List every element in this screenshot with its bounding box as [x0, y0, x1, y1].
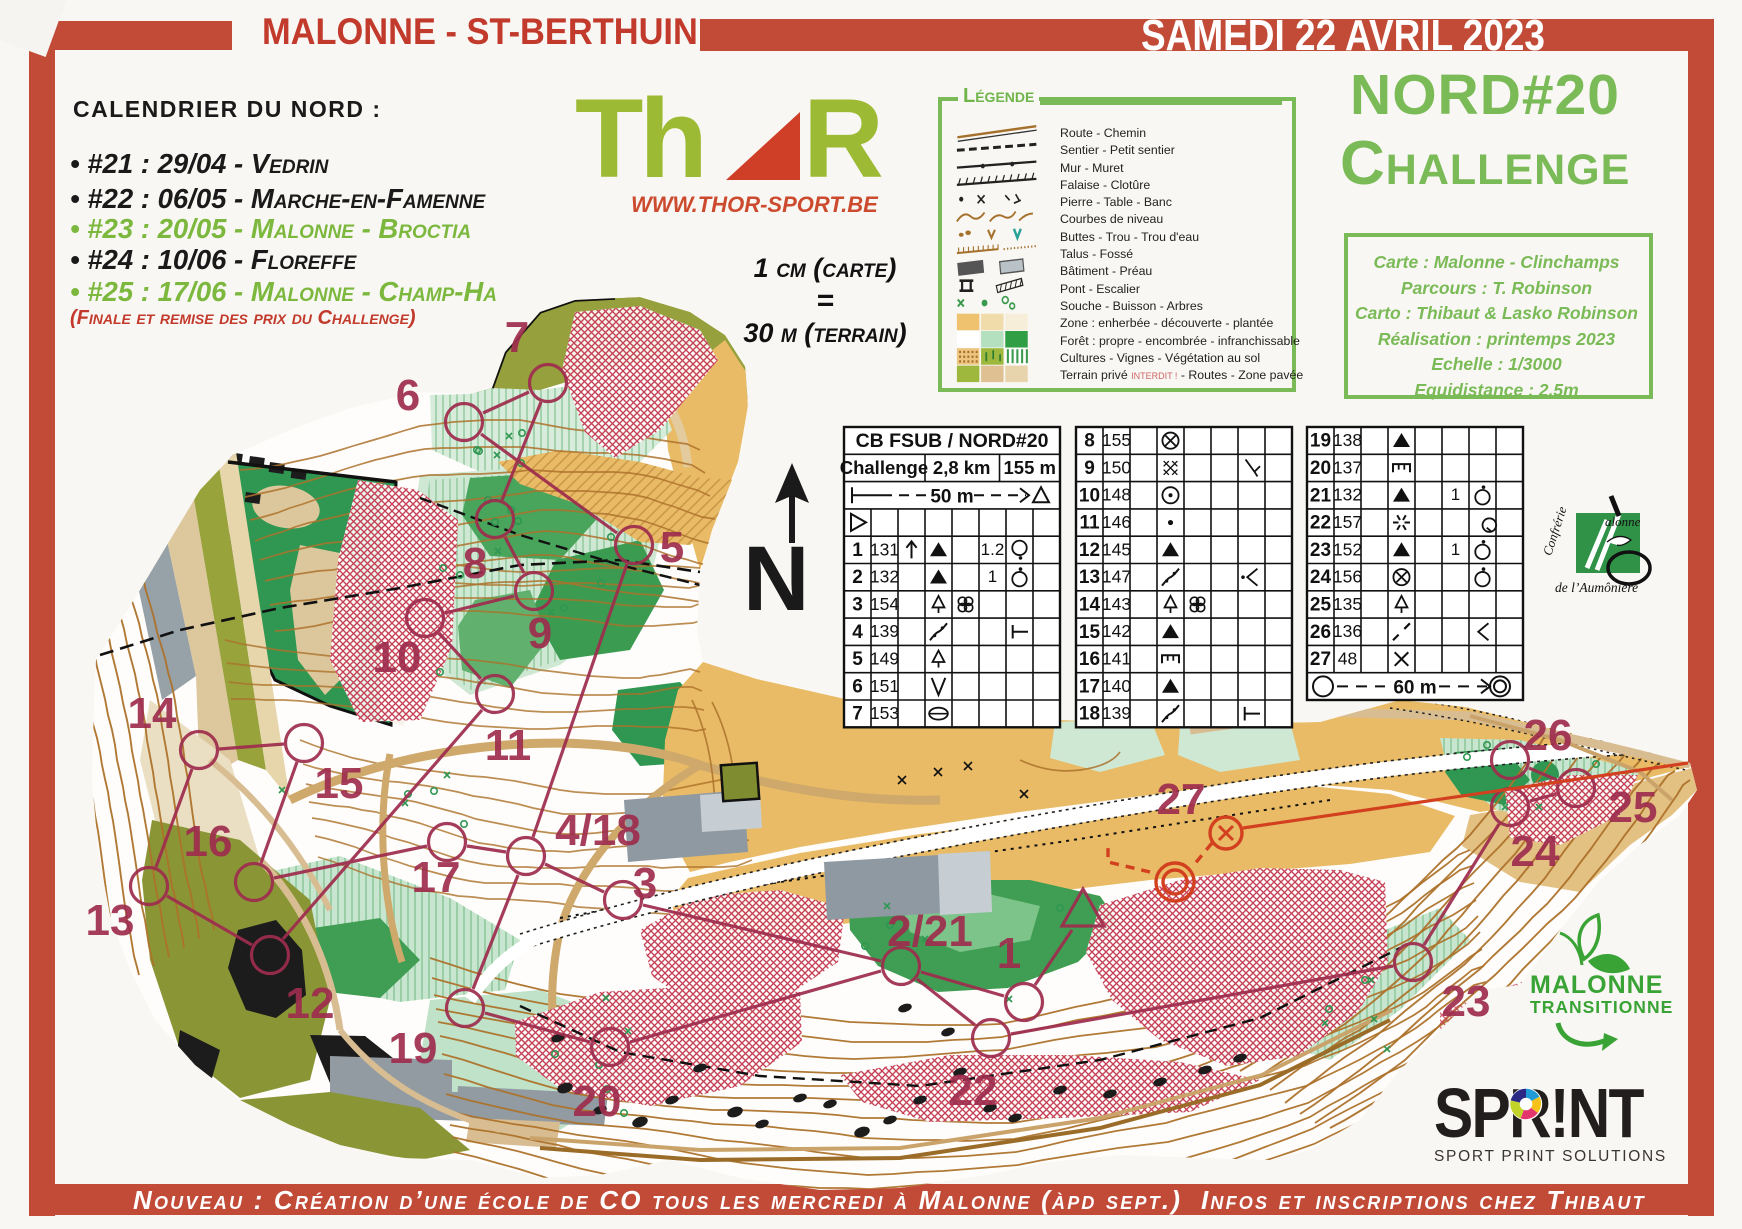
- svg-text:12: 12: [1079, 540, 1100, 561]
- svg-text:27: 27: [1310, 649, 1331, 670]
- svg-text:CB FSUB / NORD#20: CB FSUB / NORD#20: [856, 430, 1049, 452]
- svg-text:140: 140: [1102, 676, 1131, 696]
- svg-text:13: 13: [1079, 567, 1100, 588]
- svg-text:141: 141: [1102, 649, 1131, 669]
- svg-text:132: 132: [1333, 485, 1362, 505]
- svg-text:152: 152: [1333, 539, 1362, 559]
- svg-text:22: 22: [1310, 513, 1331, 534]
- svg-text:1: 1: [852, 540, 863, 561]
- svg-text:26: 26: [1310, 622, 1331, 643]
- svg-text:136: 136: [1333, 621, 1362, 641]
- svg-text:156: 156: [1333, 567, 1362, 587]
- svg-text:139: 139: [1102, 703, 1131, 723]
- svg-text:157: 157: [1333, 512, 1362, 532]
- svg-text:155: 155: [1102, 430, 1131, 450]
- svg-text:139: 139: [870, 621, 899, 641]
- svg-text:149: 149: [870, 649, 899, 669]
- svg-text:60 m: 60 m: [1393, 677, 1436, 698]
- svg-text:145: 145: [1102, 539, 1131, 559]
- svg-text:15: 15: [1079, 622, 1101, 643]
- svg-text:Challenge: Challenge: [840, 457, 928, 478]
- svg-text:147: 147: [1102, 567, 1131, 587]
- svg-text:24: 24: [1310, 567, 1332, 588]
- svg-text:50 m: 50 m: [930, 486, 973, 507]
- svg-text:148: 148: [1102, 485, 1131, 505]
- svg-text:150: 150: [1102, 457, 1131, 477]
- svg-text:132: 132: [870, 567, 899, 587]
- svg-text:1: 1: [988, 567, 997, 586]
- svg-text:154: 154: [870, 594, 899, 614]
- svg-text:143: 143: [1102, 594, 1131, 614]
- svg-text:6: 6: [852, 676, 863, 697]
- svg-text:137: 137: [1333, 457, 1362, 477]
- svg-text:10: 10: [1079, 485, 1100, 506]
- svg-text:2,8 km: 2,8 km: [933, 457, 991, 478]
- svg-text:48: 48: [1338, 649, 1357, 669]
- svg-text:25: 25: [1310, 594, 1332, 615]
- svg-text:2: 2: [852, 567, 863, 588]
- svg-text:135: 135: [1333, 594, 1362, 614]
- svg-text:20: 20: [1310, 458, 1331, 479]
- svg-text:8: 8: [1084, 431, 1095, 452]
- svg-text:14: 14: [1079, 594, 1101, 615]
- svg-text:5: 5: [852, 649, 863, 670]
- svg-text:18: 18: [1079, 704, 1100, 725]
- svg-text:21: 21: [1310, 485, 1332, 506]
- svg-text:23: 23: [1310, 540, 1331, 561]
- svg-text:17: 17: [1079, 676, 1100, 697]
- svg-text:1: 1: [1451, 540, 1460, 559]
- svg-text:16: 16: [1079, 649, 1100, 670]
- svg-text:131: 131: [870, 539, 899, 559]
- svg-text:11: 11: [1079, 513, 1100, 534]
- svg-text:146: 146: [1102, 512, 1131, 532]
- svg-text:19: 19: [1310, 431, 1331, 452]
- svg-text:155 m: 155 m: [1004, 457, 1056, 478]
- svg-text:3: 3: [852, 594, 863, 615]
- svg-text:142: 142: [1102, 621, 1131, 641]
- svg-text:153: 153: [870, 703, 899, 723]
- svg-text:9: 9: [1084, 458, 1095, 479]
- svg-text:151: 151: [870, 676, 899, 696]
- svg-text:4: 4: [852, 622, 863, 643]
- svg-text:1.2: 1.2: [981, 540, 1005, 559]
- svg-text:7: 7: [852, 704, 863, 725]
- svg-text:1: 1: [1451, 485, 1460, 504]
- svg-text:138: 138: [1333, 430, 1362, 450]
